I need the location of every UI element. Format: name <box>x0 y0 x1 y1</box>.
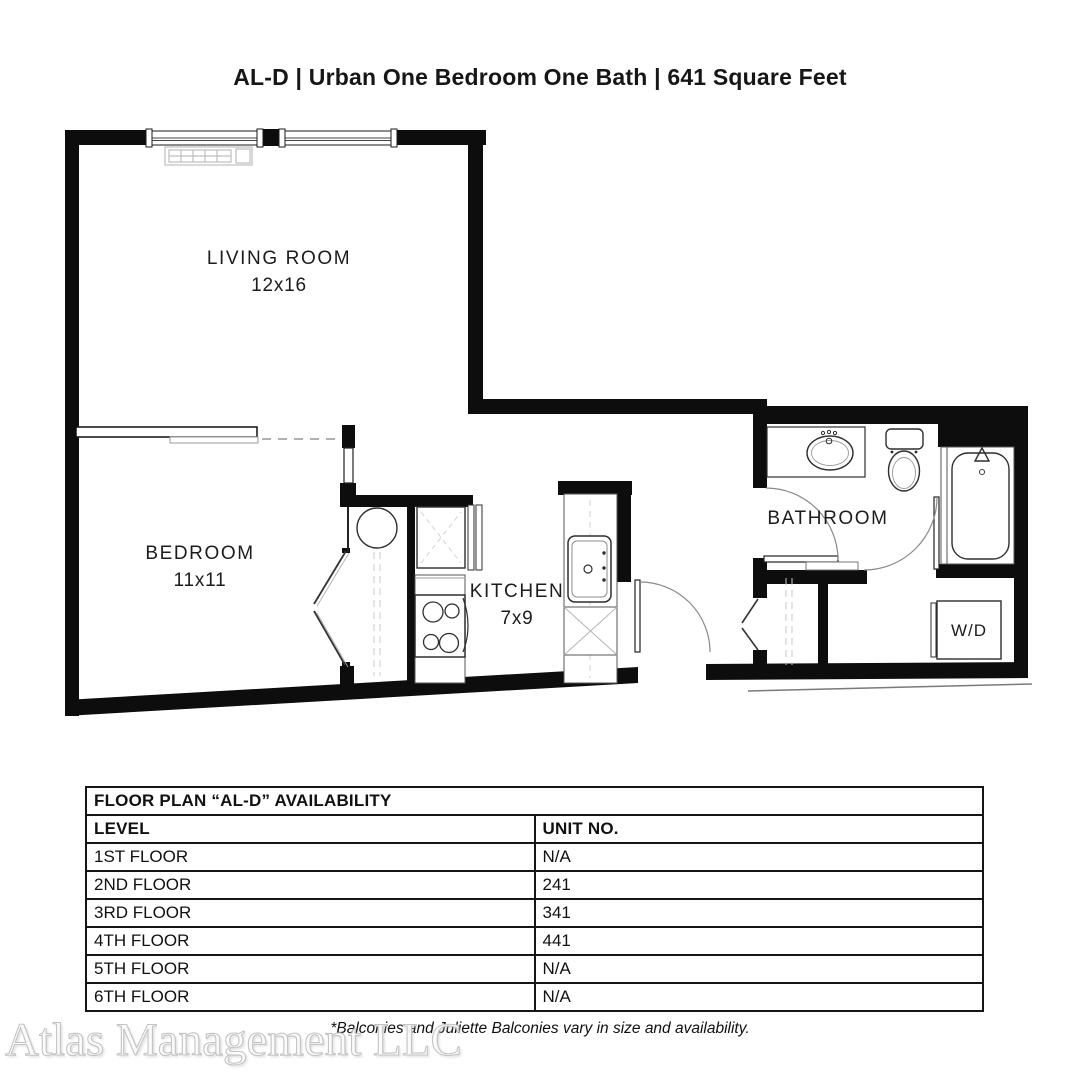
level-cell: 1ST FLOOR <box>86 843 535 871</box>
table-row: 6TH FLOOR N/A <box>86 983 983 1011</box>
bathroom-vanity-icon <box>767 427 865 477</box>
column-header-level: LEVEL <box>86 815 535 843</box>
table-header-row: LEVEL UNIT NO. <box>86 815 983 843</box>
table-title: FLOOR PLAN “AL-D” AVAILABILITY <box>86 787 983 815</box>
unit-cell: 241 <box>535 871 984 899</box>
hall-closet-rod <box>786 578 792 665</box>
table-row: 5TH FLOOR N/A <box>86 955 983 983</box>
cased-opening <box>344 448 353 483</box>
hvac-unit-icon <box>165 147 252 165</box>
entry-door <box>635 580 710 652</box>
washer-dryer-label: W/D <box>951 621 987 641</box>
water-heater-closet <box>357 508 397 676</box>
unit-cell: N/A <box>535 955 984 983</box>
level-cell: 3RD FLOOR <box>86 899 535 927</box>
sliding-door <box>76 427 338 443</box>
bathtub-icon <box>941 447 1014 564</box>
column-header-unit: UNIT NO. <box>535 815 984 843</box>
availability-table: FLOOR PLAN “AL-D” AVAILABILITY LEVEL UNI… <box>85 786 984 1012</box>
dishwasher-icon <box>564 607 617 655</box>
kitchen-label: KITCHEN 7x9 <box>470 578 565 632</box>
kitchen-sink-icon <box>568 536 611 602</box>
table-title-row: FLOOR PLAN “AL-D” AVAILABILITY <box>86 787 983 815</box>
water-heater-icon <box>357 508 397 548</box>
living-room-dims: 12x16 <box>207 272 351 299</box>
table-row: 2ND FLOOR 241 <box>86 871 983 899</box>
kitchen-name: KITCHEN <box>470 578 565 605</box>
level-cell: 2ND FLOOR <box>86 871 535 899</box>
living-room-label: LIVING ROOM 12x16 <box>207 245 351 299</box>
bedroom-name: BEDROOM <box>145 540 254 567</box>
bedroom-dims: 11x11 <box>145 567 254 594</box>
living-room-name: LIVING ROOM <box>207 245 351 272</box>
level-cell: 6TH FLOOR <box>86 983 535 1011</box>
watermark: Atlas Management LLC <box>5 1013 462 1067</box>
hall-closet-bifold-door <box>742 599 758 650</box>
unit-cell: N/A <box>535 843 984 871</box>
balcony-line <box>748 684 1032 691</box>
bathroom-label: BATHROOM <box>767 505 888 532</box>
toilet-icon <box>886 429 923 491</box>
stove-icon <box>415 575 468 683</box>
bedroom-label: BEDROOM 11x11 <box>145 540 254 594</box>
level-cell: 4TH FLOOR <box>86 927 535 955</box>
level-cell: 5TH FLOOR <box>86 955 535 983</box>
unit-cell: 441 <box>535 927 984 955</box>
bedroom-closet-bifold-door <box>314 551 349 667</box>
kitchen-island <box>564 494 617 683</box>
unit-cell: 341 <box>535 899 984 927</box>
floor-plan-page: { "page": { "title": "AL-D | Urban One B… <box>0 0 1080 1080</box>
table-row: 1ST FLOOR N/A <box>86 843 983 871</box>
kitchen-dims: 7x9 <box>470 605 565 632</box>
table-row: 3RD FLOOR 341 <box>86 899 983 927</box>
unit-cell: N/A <box>535 983 984 1011</box>
table-row: 4TH FLOOR 441 <box>86 927 983 955</box>
fridge-icon <box>417 505 482 570</box>
bathroom-name: BATHROOM <box>767 505 888 532</box>
